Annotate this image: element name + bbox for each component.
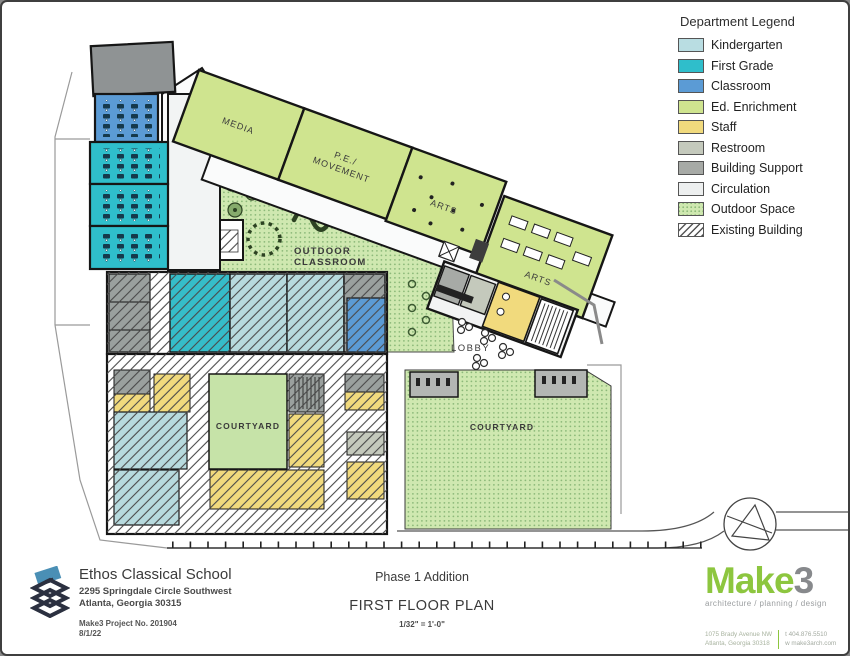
existing-band — [107, 272, 387, 354]
make3-logo: Make3 — [705, 562, 845, 599]
sheet-title: Phase 1 Addition FIRST FLOOR PLAN 1/32" … — [297, 570, 547, 629]
firm-phone: t 404.876.5510 — [785, 630, 836, 639]
title-block: Ethos Classical School 2295 Springdale C… — [2, 558, 848, 654]
circulation-swatch — [678, 182, 704, 196]
building-support-room — [91, 42, 176, 96]
outdoor-classroom-label2: CLASSROOM — [294, 257, 367, 268]
plan-title: FIRST FLOOR PLAN — [297, 598, 547, 614]
outdoor-classroom-label: OUTDOOR — [294, 246, 351, 257]
fence-line — [167, 545, 702, 549]
firm-info: Make3 architecture / planning / design 1… — [705, 562, 845, 649]
firm-address-2: Atlanta, Georgia 30318 — [705, 639, 772, 648]
school-name: Ethos Classical School — [79, 566, 232, 583]
firm-contact: 1075 Brady Avenue NW Atlanta, Georgia 30… — [705, 630, 845, 649]
legend-item-staff: Staff — [678, 120, 844, 134]
department-legend: Department Legend Kindergarten First Gra… — [678, 14, 844, 243]
legend-title: Department Legend — [680, 14, 844, 29]
ed-enrichment-swatch — [678, 100, 704, 114]
legend-item-outdoor-space: Outdoor Space — [678, 202, 844, 216]
staff-swatch — [678, 120, 704, 134]
school-address-1: 2295 Springdale Circle Southwest — [79, 586, 232, 598]
project-number: Make3 Project No. 201904 — [79, 619, 232, 629]
existing-building-swatch — [678, 223, 704, 237]
building-support-swatch — [678, 161, 704, 175]
legend-item-ed-enrichment: Ed. Enrichment — [678, 100, 844, 114]
ethos-logo — [30, 566, 70, 618]
legend-item-circulation: Circulation — [678, 182, 844, 196]
school-info: Ethos Classical School 2295 Springdale C… — [30, 566, 232, 640]
drawing-sheet: OUTDOOR CLASSROOM — [0, 0, 850, 656]
lobby-label: LOBBY — [451, 343, 490, 354]
courtyard-east-group: COURTYARD — [405, 370, 611, 529]
firm-address-1: 1075 Brady Avenue NW — [705, 630, 772, 639]
legend-item-kindergarten: Kindergarten — [678, 38, 844, 52]
existing-block-south: COURTYARD — [107, 354, 387, 534]
first-grade-swatch — [678, 59, 704, 73]
plan-scale: 1/32" = 1'-0" — [297, 620, 547, 629]
project-date: 8/1/22 — [79, 629, 232, 639]
legend-item-building-support: Building Support — [678, 161, 844, 175]
school-address-2: Atlanta, Georgia 30315 — [79, 598, 232, 610]
legend-item-restroom: Restroom — [678, 141, 844, 155]
firm-web: w make3arch.com — [785, 639, 836, 648]
band-existing-hatch — [107, 272, 387, 354]
classroom-swatch — [678, 79, 704, 93]
courtyard-west-label: COURTYARD — [216, 421, 280, 431]
phase-label: Phase 1 Addition — [297, 570, 547, 584]
legend-item-existing-building: Existing Building — [678, 223, 844, 237]
outdoor-space-swatch — [678, 202, 704, 216]
kindergarten-swatch — [678, 38, 704, 52]
legend-item-classroom: Classroom — [678, 79, 844, 93]
restroom-swatch — [678, 141, 704, 155]
courtyard-east-label: COURTYARD — [470, 422, 534, 432]
firm-tagline: architecture / planning / design — [705, 599, 845, 608]
legend-item-first-grade: First Grade — [678, 59, 844, 73]
